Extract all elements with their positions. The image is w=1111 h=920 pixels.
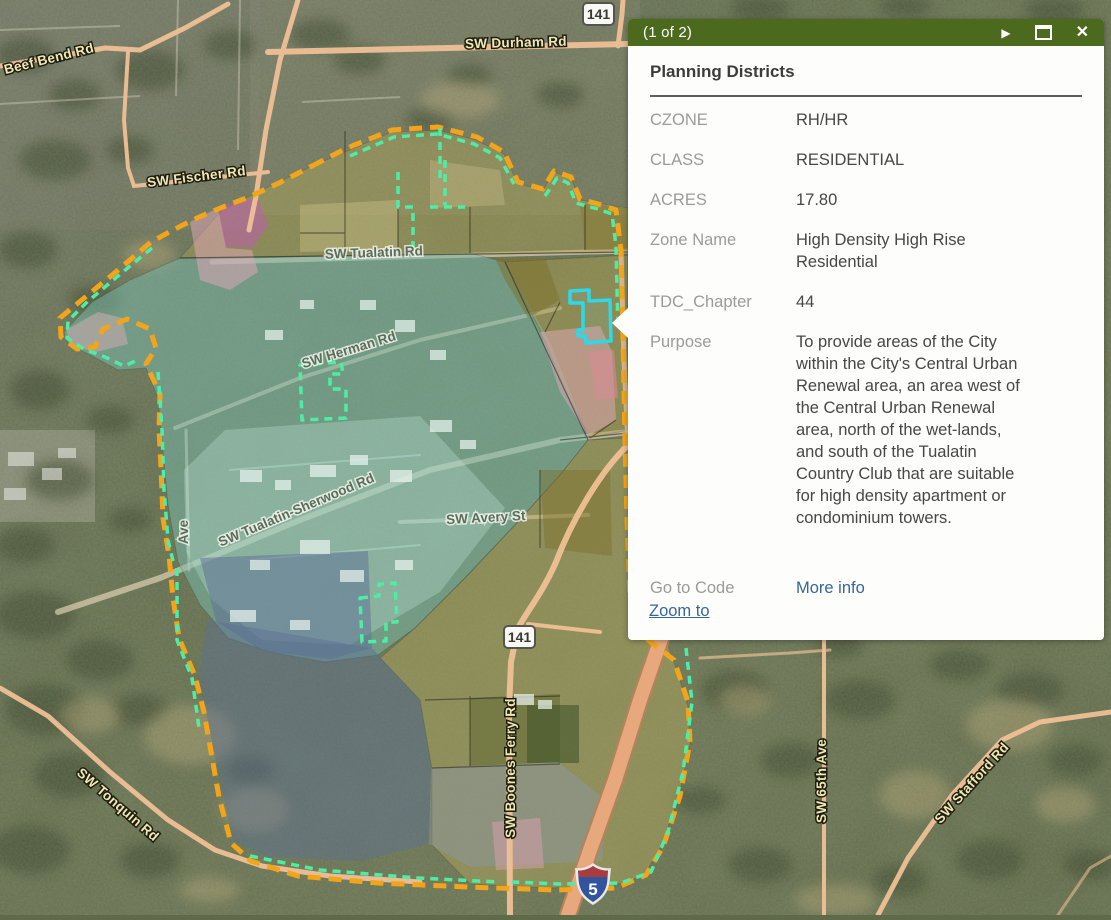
zoom-to-link[interactable]: Zoom to — [649, 602, 710, 620]
svg-text:141: 141 — [587, 6, 611, 22]
field-row-purpose: Purpose To provide areas of the City wit… — [650, 331, 1082, 529]
route-141-shield-north: 141 — [583, 3, 614, 25]
popup-title: Planning Districts — [650, 62, 1082, 82]
field-row-go-to-code: Go to Code More info — [650, 577, 1082, 597]
road-label-sw-65th-ave: SW 65th Ave — [814, 739, 829, 823]
road-label-sw-durham-rd: SW Durham Rd — [465, 34, 567, 52]
popup-pagination: (1 of 2) — [643, 24, 692, 41]
field-value: 44 — [796, 291, 1031, 313]
title-divider — [650, 95, 1082, 97]
field-row-acres: ACRES 17.80 — [650, 189, 1082, 211]
close-icon[interactable]: ✕ — [1076, 25, 1089, 41]
maximize-icon[interactable] — [1035, 25, 1052, 40]
more-info-link[interactable]: More info — [796, 577, 1031, 597]
field-label: Purpose — [650, 331, 796, 529]
field-row-zone-name: Zone Name High Density High Rise Residen… — [650, 229, 1082, 273]
road-label-ave: Ave — [176, 519, 191, 544]
zone-pink-bottom — [492, 818, 544, 870]
road-label-sw-boones-ferry-rd: SW Boones Ferry Rd — [503, 698, 518, 838]
popup-anchor-pointer — [612, 308, 628, 338]
field-row-czone: CZONE RH/HR — [650, 109, 1082, 131]
field-value: To provide areas of the City within the … — [796, 331, 1031, 529]
field-label: CZONE — [650, 109, 796, 131]
route-141-shield-south: 141 — [504, 626, 535, 648]
field-value: RESIDENTIAL — [796, 149, 1031, 171]
popup-footer: Zoom to — [628, 597, 1104, 621]
field-row-class: CLASS RESIDENTIAL — [650, 149, 1082, 171]
popup-content[interactable]: Planning Districts CZONE RH/HR CLASS RES… — [628, 46, 1104, 597]
popup-header[interactable]: (1 of 2) ▶ ✕ — [628, 19, 1104, 46]
field-value: High Density High Rise Residential — [796, 229, 1031, 273]
svg-text:5: 5 — [588, 880, 597, 899]
field-label: TDC_Chapter — [650, 291, 796, 313]
field-row-tdc-chapter: TDC_Chapter 44 — [650, 291, 1082, 313]
svg-text:141: 141 — [508, 629, 532, 645]
field-label: Zone Name — [650, 229, 796, 273]
feature-popup: (1 of 2) ▶ ✕ Planning Districts CZONE RH… — [628, 19, 1104, 640]
field-label: CLASS — [650, 149, 796, 171]
field-label: Go to Code — [650, 577, 796, 597]
next-feature-button[interactable]: ▶ — [1001, 27, 1010, 39]
field-value: 17.80 — [796, 189, 1031, 211]
field-value: RH/HR — [796, 109, 1031, 131]
field-label: ACRES — [650, 189, 796, 211]
